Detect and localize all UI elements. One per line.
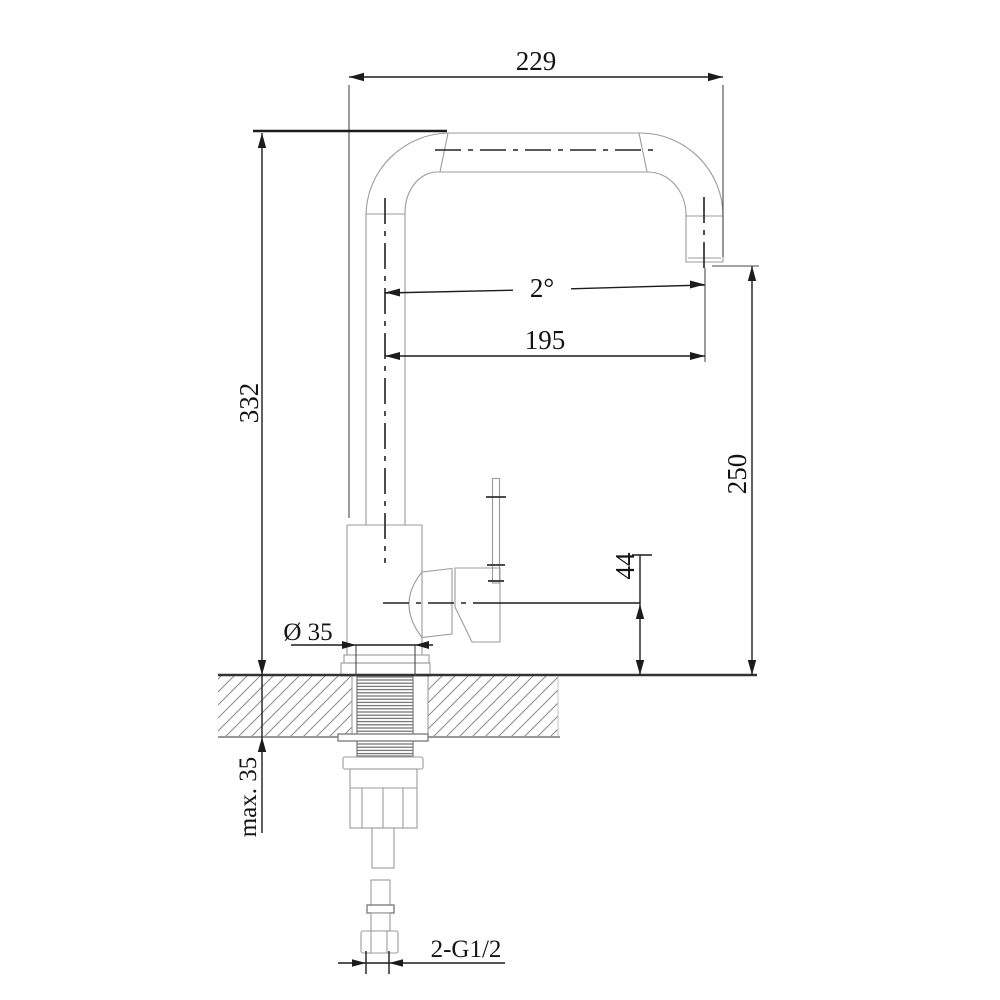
mounting-nut	[350, 769, 417, 828]
valve-body	[347, 525, 500, 655]
dim-label-base-diameter: Ø 35	[283, 619, 332, 646]
threaded-shank	[357, 677, 413, 756]
dim-label-total-height: 332	[234, 383, 264, 424]
countertop-hatch-left	[218, 676, 352, 736]
countertop-section	[218, 675, 757, 737]
lock-nut	[343, 757, 423, 769]
drawing-canvas: 229 332 max. 35 2° 195 250	[0, 0, 1000, 1000]
connector-collar	[367, 905, 394, 913]
countertop-hatch-right	[428, 676, 558, 736]
dim-label-counter-thickness: max. 35	[235, 757, 262, 838]
dimension-2deg-spout-angle: 2°	[385, 273, 705, 303]
lever-bar	[493, 479, 500, 584]
control-lever	[486, 479, 506, 584]
hose-connector	[361, 880, 398, 953]
dimension-332-total-height: 332	[234, 131, 447, 675]
centerlines	[383, 150, 704, 603]
lock-washer	[338, 734, 428, 741]
dim-label-spout-height: 250	[722, 454, 752, 495]
hex-nut	[361, 931, 398, 953]
dim-label-outlet-clearance: 44	[610, 552, 640, 580]
base-flange	[341, 655, 430, 676]
faucet-technical-drawing: 229 332 max. 35 2° 195 250	[0, 0, 1000, 1000]
dim-label-top-width: 229	[516, 46, 557, 76]
handle-body	[455, 568, 500, 642]
dimension-250-spout-height: 250	[712, 266, 759, 675]
dim-label-inlet-thread: 2-G1/2	[431, 936, 502, 963]
dimension-d35-base-diameter: Ø 35	[283, 619, 433, 676]
dim-label-spout-reach: 195	[525, 325, 566, 355]
supply-stem	[372, 828, 394, 868]
dim-label-spout-angle: 2°	[530, 273, 554, 303]
